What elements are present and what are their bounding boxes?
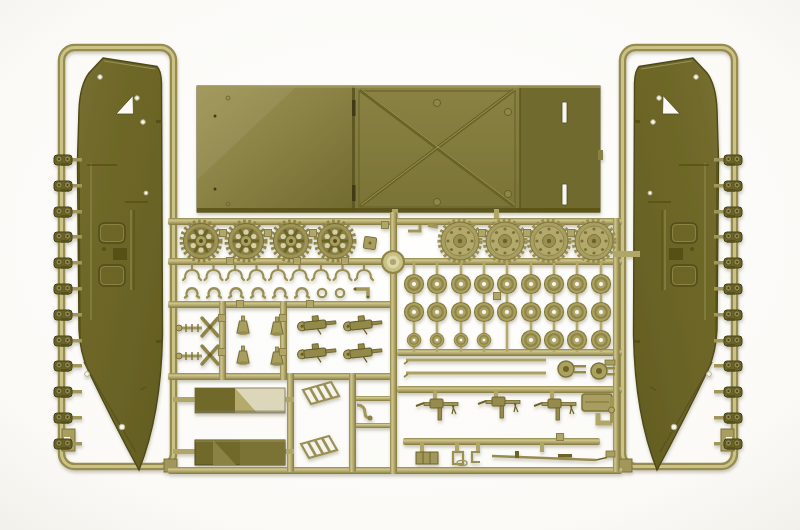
gate xyxy=(237,301,244,308)
gate xyxy=(310,230,317,237)
gate xyxy=(294,258,301,265)
square-plate-part xyxy=(363,236,377,250)
runner-v-3 xyxy=(287,373,294,472)
radiator-part xyxy=(416,452,438,464)
road-wheel-small xyxy=(454,333,468,347)
toothed-idler xyxy=(529,221,570,262)
deck-slot-upper xyxy=(562,102,567,123)
road-wheel xyxy=(568,275,587,294)
gate xyxy=(227,258,234,265)
road-wheel xyxy=(405,275,424,294)
toothed-idler xyxy=(485,221,526,262)
runner-v-1 xyxy=(219,301,226,380)
road-wheel xyxy=(475,275,494,294)
gate xyxy=(219,315,226,322)
road-wheel xyxy=(592,303,611,322)
gate xyxy=(342,258,349,265)
road-wheel xyxy=(522,331,541,350)
road-wheel xyxy=(592,331,611,350)
road-wheel xyxy=(452,275,471,294)
gate xyxy=(568,230,575,237)
deck-panel xyxy=(197,86,603,213)
road-wheel-small xyxy=(407,333,421,347)
road-wheel xyxy=(568,331,587,350)
road-wheel xyxy=(405,303,424,322)
gate xyxy=(219,349,226,356)
road-wheel xyxy=(428,303,447,322)
toothed-idler xyxy=(574,221,615,262)
barrel-rod xyxy=(406,359,546,362)
gate xyxy=(265,230,272,237)
road-wheel-small xyxy=(430,333,444,347)
road-wheel xyxy=(568,303,587,322)
runner-h-right7 xyxy=(403,438,600,445)
road-wheel xyxy=(498,275,517,294)
road-wheel xyxy=(428,275,447,294)
gate xyxy=(479,230,486,237)
road-wheel xyxy=(452,303,471,322)
deck-connector-stub xyxy=(494,209,499,219)
road-wheel-small xyxy=(477,333,491,347)
runner-v-2 xyxy=(280,301,287,380)
deck-right-section xyxy=(520,86,600,212)
runner-h-right5 xyxy=(397,349,622,356)
runner-h-right6 xyxy=(397,386,622,393)
road-wheel xyxy=(545,275,564,294)
gate xyxy=(220,230,227,237)
sprue-photo xyxy=(0,0,800,530)
runner-v-4 xyxy=(349,373,356,472)
junction-knob xyxy=(382,251,404,273)
road-wheel xyxy=(498,303,517,322)
road-wheel xyxy=(592,275,611,294)
gate xyxy=(382,222,389,229)
frame-connector-stub xyxy=(613,251,640,257)
barrel-rod xyxy=(406,372,546,375)
gate xyxy=(280,315,287,322)
road-wheel xyxy=(475,303,494,322)
gate xyxy=(280,349,287,356)
road-wheel xyxy=(545,303,564,322)
deck-slot-lower xyxy=(562,184,567,205)
toothed-idler xyxy=(440,221,481,262)
gate xyxy=(524,230,531,237)
road-wheel xyxy=(522,275,541,294)
gate xyxy=(557,434,564,441)
road-wheel xyxy=(522,303,541,322)
gate xyxy=(307,301,314,308)
gate xyxy=(494,293,501,300)
road-wheel xyxy=(545,331,564,350)
photo-stage xyxy=(0,0,800,530)
